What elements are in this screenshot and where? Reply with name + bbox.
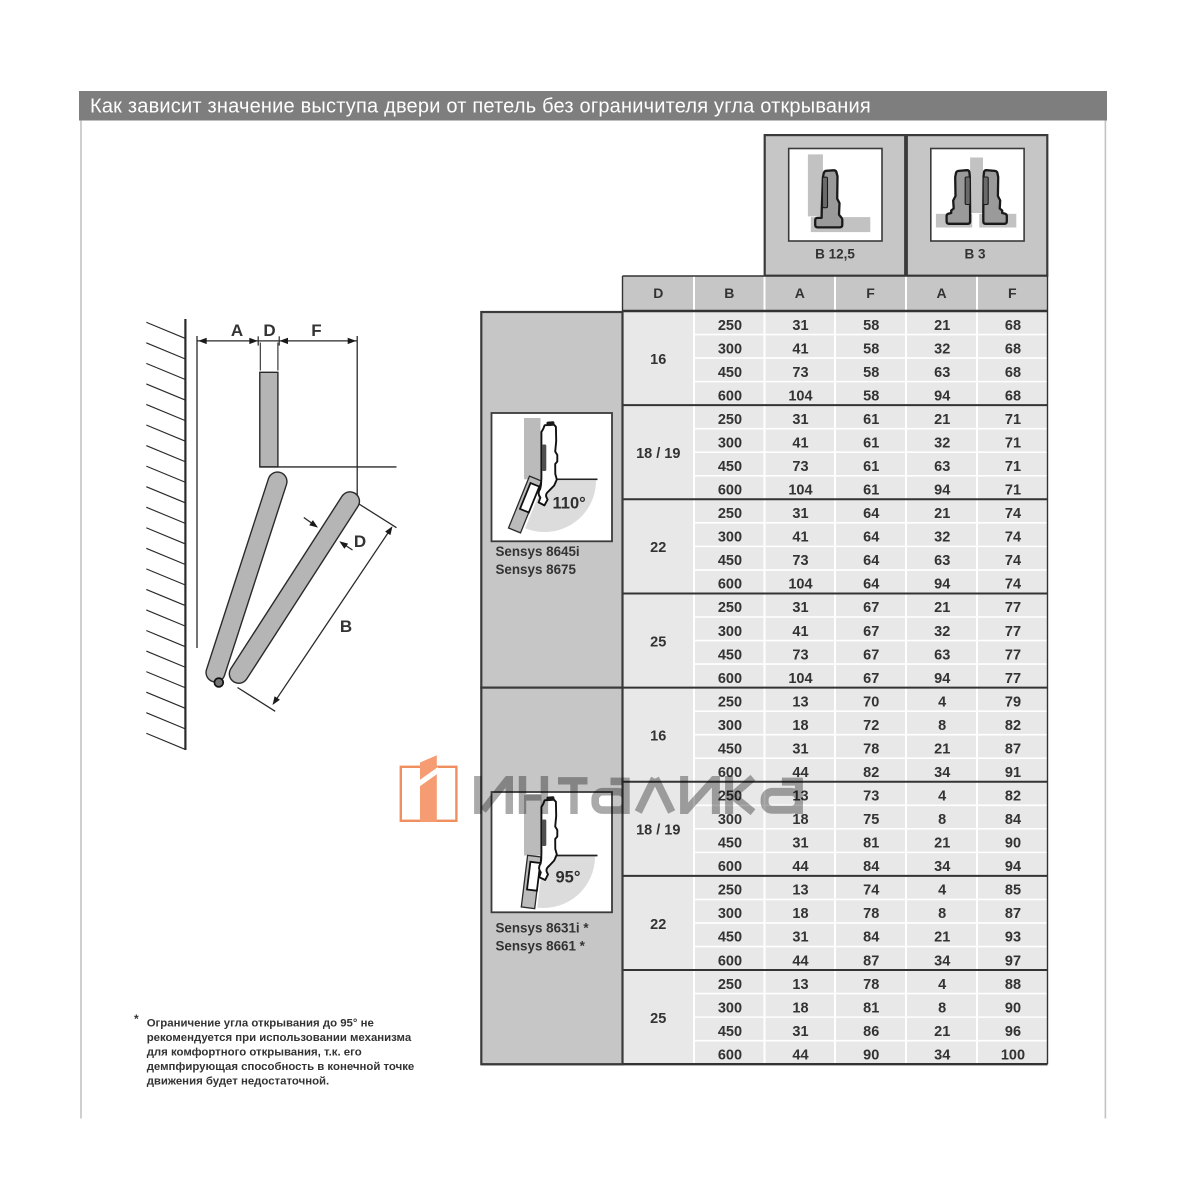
svg-text:94: 94: [934, 577, 950, 593]
svg-text:31: 31: [792, 318, 808, 334]
svg-text:91: 91: [1005, 765, 1021, 781]
svg-text:63: 63: [934, 553, 950, 569]
svg-text:87: 87: [863, 953, 879, 969]
svg-text:22: 22: [650, 540, 666, 556]
svg-text:63: 63: [934, 647, 950, 663]
svg-text:67: 67: [863, 647, 879, 663]
svg-text:64: 64: [863, 530, 879, 546]
svg-text:Sensys 8631i *: Sensys 8631i *: [496, 921, 590, 936]
svg-text:Sensys 8675: Sensys 8675: [496, 562, 577, 577]
svg-text:движения будет недостаточной.: движения будет недостаточной.: [147, 1076, 330, 1088]
svg-text:18: 18: [792, 1000, 808, 1016]
svg-text:104: 104: [788, 483, 812, 499]
svg-text:31: 31: [792, 930, 808, 946]
svg-text:110°: 110°: [553, 495, 586, 513]
svg-text:250: 250: [718, 506, 742, 522]
svg-text:44: 44: [792, 859, 808, 875]
svg-text:B 3: B 3: [964, 247, 986, 262]
svg-text:демпфирующая способность в кон: демпфирующая способность в конечной точк…: [147, 1061, 415, 1073]
svg-text:8: 8: [938, 1000, 946, 1016]
svg-text:18: 18: [792, 718, 808, 734]
svg-text:B 12,5: B 12,5: [815, 247, 855, 262]
svg-text:21: 21: [934, 741, 950, 757]
svg-text:B: B: [724, 285, 734, 301]
svg-text:300: 300: [718, 341, 742, 357]
svg-text:300: 300: [718, 1000, 742, 1016]
svg-text:F: F: [1008, 285, 1017, 301]
svg-text:84: 84: [1005, 812, 1021, 828]
svg-text:84: 84: [863, 930, 879, 946]
svg-text:34: 34: [934, 1047, 950, 1063]
svg-text:300: 300: [718, 435, 742, 451]
svg-text:71: 71: [1005, 483, 1021, 499]
svg-text:82: 82: [1005, 789, 1021, 805]
svg-text:68: 68: [1005, 388, 1021, 404]
svg-text:300: 300: [718, 906, 742, 922]
svg-text:Ограничение угла открывания до: Ограничение угла открывания до 95° не: [147, 1018, 374, 1030]
svg-text:450: 450: [718, 553, 742, 569]
svg-text:600: 600: [718, 577, 742, 593]
svg-text:250: 250: [718, 694, 742, 710]
svg-text:450: 450: [718, 1024, 742, 1040]
svg-text:25: 25: [650, 634, 666, 650]
svg-text:32: 32: [934, 341, 950, 357]
svg-text:для комфортного открывания, т.: для комфортного открывания, т.к. его: [147, 1047, 362, 1059]
svg-text:84: 84: [863, 859, 879, 875]
svg-text:8: 8: [938, 718, 946, 734]
svg-text:68: 68: [1005, 365, 1021, 381]
svg-text:41: 41: [792, 624, 808, 640]
svg-text:73: 73: [792, 459, 808, 475]
svg-text:64: 64: [863, 577, 879, 593]
svg-text:450: 450: [718, 836, 742, 852]
svg-text:95°: 95°: [556, 869, 581, 887]
svg-text:90: 90: [1005, 836, 1021, 852]
svg-text:Sensys 8645i: Sensys 8645i: [496, 544, 580, 559]
svg-text:31: 31: [792, 506, 808, 522]
svg-text:13: 13: [792, 977, 808, 993]
svg-text:78: 78: [863, 977, 879, 993]
svg-text:4: 4: [938, 789, 946, 805]
svg-text:90: 90: [863, 1047, 879, 1063]
svg-text:71: 71: [1005, 459, 1021, 475]
svg-text:74: 74: [1005, 553, 1021, 569]
svg-text:88: 88: [1005, 977, 1021, 993]
svg-text:77: 77: [1005, 647, 1021, 663]
svg-text:87: 87: [1005, 906, 1021, 922]
svg-text:13: 13: [792, 694, 808, 710]
svg-text:250: 250: [718, 977, 742, 993]
svg-text:16: 16: [650, 728, 666, 744]
svg-text:73: 73: [792, 365, 808, 381]
svg-text:78: 78: [863, 906, 879, 922]
svg-text:90: 90: [1005, 1000, 1021, 1016]
svg-text:*: *: [134, 1012, 139, 1026]
svg-text:64: 64: [863, 506, 879, 522]
svg-text:25: 25: [650, 1011, 666, 1027]
svg-text:32: 32: [934, 435, 950, 451]
svg-text:104: 104: [788, 671, 812, 687]
svg-text:21: 21: [934, 318, 950, 334]
svg-text:67: 67: [863, 600, 879, 616]
svg-text:72: 72: [863, 718, 879, 734]
svg-text:B: B: [340, 617, 352, 636]
svg-text:104: 104: [788, 577, 812, 593]
svg-text:71: 71: [1005, 412, 1021, 428]
svg-text:A: A: [231, 321, 243, 340]
svg-text:21: 21: [934, 600, 950, 616]
svg-text:8: 8: [938, 906, 946, 922]
svg-text:94: 94: [934, 388, 950, 404]
svg-text:94: 94: [934, 483, 950, 499]
svg-text:300: 300: [718, 812, 742, 828]
svg-text:74: 74: [863, 883, 879, 899]
svg-text:250: 250: [718, 412, 742, 428]
svg-text:73: 73: [792, 553, 808, 569]
svg-text:67: 67: [863, 671, 879, 687]
svg-text:A: A: [795, 285, 805, 301]
svg-text:74: 74: [1005, 530, 1021, 546]
svg-text:D: D: [263, 321, 275, 340]
svg-text:Как зависит значение выступа д: Как зависит значение выступа двери от пе…: [90, 96, 871, 118]
svg-text:81: 81: [863, 1000, 879, 1016]
svg-text:97: 97: [1005, 953, 1021, 969]
svg-text:41: 41: [792, 435, 808, 451]
svg-text:85: 85: [1005, 883, 1021, 899]
svg-text:300: 300: [718, 624, 742, 640]
svg-text:рекомендуется при использовани: рекомендуется при использовании механизм…: [147, 1032, 412, 1044]
svg-text:73: 73: [863, 789, 879, 805]
svg-text:300: 300: [718, 718, 742, 734]
svg-text:D: D: [653, 285, 663, 301]
svg-text:A: A: [936, 285, 946, 301]
svg-text:58: 58: [863, 388, 879, 404]
svg-text:82: 82: [863, 765, 879, 781]
svg-text:82: 82: [1005, 718, 1021, 734]
svg-text:600: 600: [718, 953, 742, 969]
svg-text:77: 77: [1005, 671, 1021, 687]
svg-text:250: 250: [718, 883, 742, 899]
svg-text:21: 21: [934, 506, 950, 522]
svg-text:79: 79: [1005, 694, 1021, 710]
svg-text:300: 300: [718, 530, 742, 546]
svg-text:44: 44: [792, 1047, 808, 1063]
svg-text:18: 18: [792, 906, 808, 922]
svg-text:63: 63: [934, 459, 950, 475]
svg-text:34: 34: [934, 765, 950, 781]
svg-text:18: 18: [792, 812, 808, 828]
svg-text:450: 450: [718, 741, 742, 757]
svg-text:77: 77: [1005, 624, 1021, 640]
svg-text:600: 600: [718, 671, 742, 687]
svg-text:61: 61: [863, 483, 879, 499]
svg-text:34: 34: [934, 953, 950, 969]
svg-text:31: 31: [792, 412, 808, 428]
svg-text:21: 21: [934, 836, 950, 852]
svg-text:68: 68: [1005, 318, 1021, 334]
svg-text:4: 4: [938, 694, 946, 710]
svg-text:450: 450: [718, 365, 742, 381]
svg-text:18 / 19: 18 / 19: [636, 823, 680, 839]
svg-text:450: 450: [718, 647, 742, 663]
svg-text:13: 13: [792, 883, 808, 899]
svg-text:F: F: [866, 285, 875, 301]
svg-text:104: 104: [788, 388, 812, 404]
svg-text:58: 58: [863, 341, 879, 357]
svg-text:70: 70: [863, 694, 879, 710]
svg-text:86: 86: [863, 1024, 879, 1040]
svg-text:31: 31: [792, 600, 808, 616]
svg-text:71: 71: [1005, 435, 1021, 451]
svg-text:93: 93: [1005, 930, 1021, 946]
svg-text:22: 22: [650, 917, 666, 933]
svg-text:96: 96: [1005, 1024, 1021, 1040]
svg-text:F: F: [311, 321, 321, 340]
svg-text:31: 31: [792, 836, 808, 852]
svg-text:600: 600: [718, 859, 742, 875]
svg-text:32: 32: [934, 624, 950, 640]
svg-text:41: 41: [792, 341, 808, 357]
svg-text:250: 250: [718, 318, 742, 334]
svg-text:94: 94: [934, 671, 950, 687]
svg-text:8: 8: [938, 812, 946, 828]
svg-text:41: 41: [792, 530, 808, 546]
svg-text:4: 4: [938, 883, 946, 899]
svg-text:67: 67: [863, 624, 879, 640]
svg-text:100: 100: [1001, 1047, 1025, 1063]
svg-text:75: 75: [863, 812, 879, 828]
svg-text:16: 16: [650, 352, 666, 368]
svg-text:73: 73: [792, 647, 808, 663]
svg-text:250: 250: [718, 600, 742, 616]
svg-text:450: 450: [718, 930, 742, 946]
svg-text:81: 81: [863, 836, 879, 852]
svg-text:21: 21: [934, 1024, 950, 1040]
svg-text:600: 600: [718, 483, 742, 499]
svg-text:78: 78: [863, 741, 879, 757]
svg-text:600: 600: [718, 388, 742, 404]
svg-text:21: 21: [934, 930, 950, 946]
svg-text:18 / 19: 18 / 19: [636, 446, 680, 462]
svg-text:44: 44: [792, 953, 808, 969]
svg-text:61: 61: [863, 412, 879, 428]
svg-text:31: 31: [792, 741, 808, 757]
svg-text:58: 58: [863, 318, 879, 334]
svg-text:74: 74: [1005, 506, 1021, 522]
svg-text:D: D: [354, 532, 366, 551]
svg-text:4: 4: [938, 977, 946, 993]
svg-text:32: 32: [934, 530, 950, 546]
svg-text:74: 74: [1005, 577, 1021, 593]
svg-text:600: 600: [718, 1047, 742, 1063]
svg-text:63: 63: [934, 365, 950, 381]
svg-text:31: 31: [792, 1024, 808, 1040]
svg-text:87: 87: [1005, 741, 1021, 757]
svg-text:450: 450: [718, 459, 742, 475]
svg-text:68: 68: [1005, 341, 1021, 357]
svg-text:61: 61: [863, 435, 879, 451]
svg-text:34: 34: [934, 859, 950, 875]
svg-text:58: 58: [863, 365, 879, 381]
svg-text:21: 21: [934, 412, 950, 428]
svg-text:94: 94: [1005, 859, 1021, 875]
svg-text:Sensys 8661 *: Sensys 8661 *: [496, 939, 586, 954]
svg-text:64: 64: [863, 553, 879, 569]
svg-text:61: 61: [863, 459, 879, 475]
svg-text:77: 77: [1005, 600, 1021, 616]
